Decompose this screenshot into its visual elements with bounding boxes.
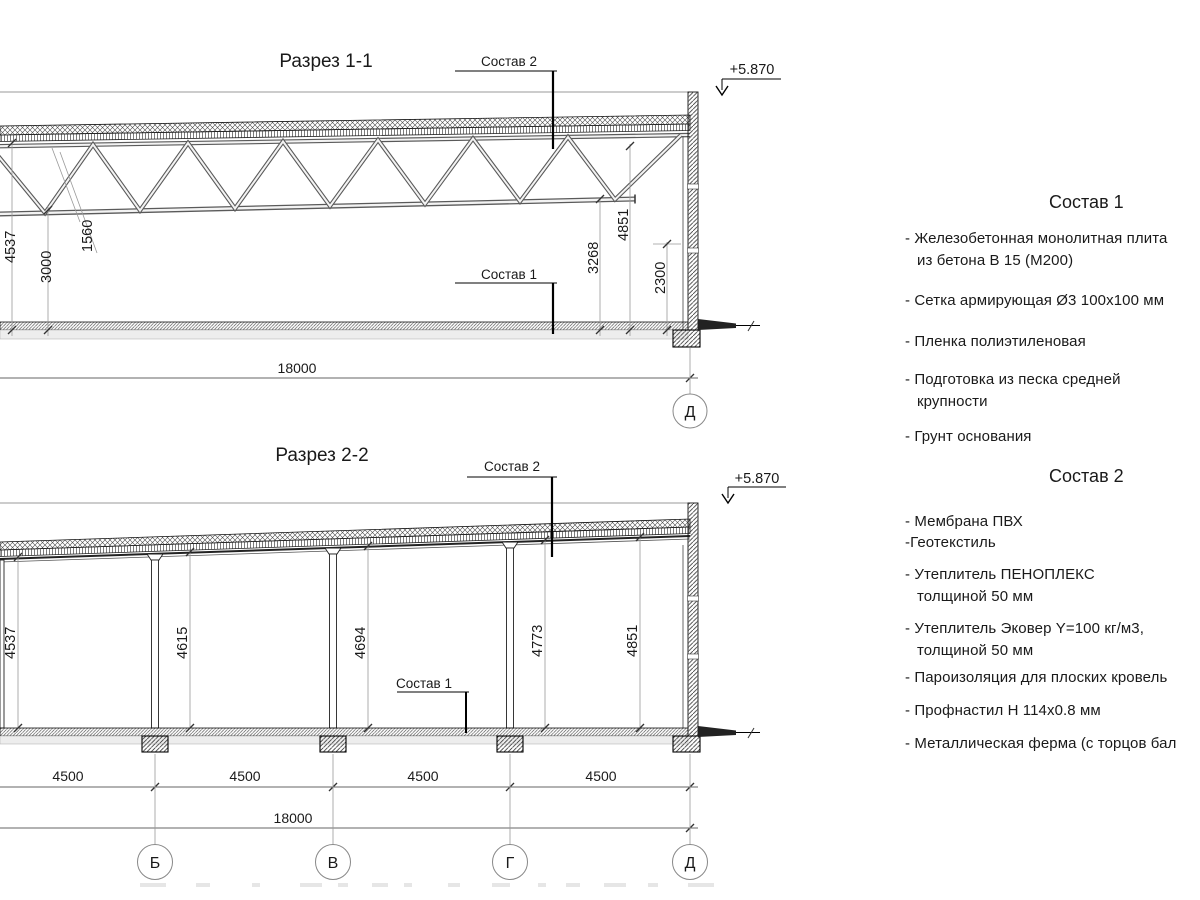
cad-sections-drawing: Разрез 1-1 [0, 0, 800, 900]
dim-4851: 4851 [616, 209, 632, 241]
list-item: - Утеплитель Эковер Y=100 кг/м3, толщино… [905, 618, 1144, 662]
note-line: - Грунт основания [905, 426, 1032, 448]
note-line: крупности [905, 391, 1121, 413]
list-item: -Геотекстиль [905, 532, 996, 554]
list-item: - Пленка полиэтиленовая [905, 331, 1086, 353]
composition-2-title: Состав 2 [1049, 466, 1124, 487]
axis-letter-g: Г [506, 855, 515, 872]
callout-roof-label-2: Состав 2 [484, 459, 540, 474]
dim-18000: 18000 [278, 360, 317, 376]
note-line: - Подготовка из песка средней [905, 369, 1121, 391]
composition-1-title: Состав 1 [1049, 192, 1124, 213]
note-line: - Сетка армирующая Ø3 100х100 мм [905, 290, 1164, 312]
section-2-title: Разрез 2-2 [275, 445, 368, 466]
note-line: - Металлическая ферма (с торцов бал [905, 733, 1176, 755]
section-1-title: Разрез 1-1 [279, 51, 372, 72]
list-item: - Сетка армирующая Ø3 100х100 мм [905, 290, 1164, 312]
column-cap [502, 542, 518, 548]
note-line: - Пароизоляция для плоских кровель [905, 667, 1167, 689]
list-item: - Пароизоляция для плоских кровель [905, 667, 1167, 689]
dim-4773: 4773 [530, 625, 546, 657]
dim-4537-2: 4537 [3, 627, 19, 659]
axis-bubble-d: Д [673, 394, 707, 428]
dim-4615: 4615 [175, 627, 191, 659]
axis-letter: Д [685, 404, 696, 421]
canopy-2 [698, 726, 760, 738]
elevation-mark-2: +5.870 [722, 471, 786, 503]
elevation-value-2: +5.870 [735, 471, 780, 487]
note-line: толщиной 50 мм [905, 586, 1095, 608]
column-cap [147, 554, 163, 560]
section-1: Разрез 1-1 [0, 51, 781, 428]
dim-18000-2: 18000 [274, 810, 313, 826]
dim-3268: 3268 [586, 242, 602, 274]
note-line: - Профнастил Н 114х0.8 мм [905, 700, 1101, 722]
total-width-dimension: 18000 [0, 348, 698, 394]
axis-letter-b: Б [150, 855, 161, 872]
columns [0, 542, 518, 728]
note-line: -Геотекстиль [905, 532, 996, 554]
floor-slab [0, 322, 688, 339]
list-item: - Утеплитель ПЕНОПЛЕКС толщиной 50 мм [905, 564, 1095, 608]
axis-letter-d2: Д [685, 855, 696, 872]
height-leader-lines-2 [18, 536, 640, 728]
list-item: - Железобетонная монолитная плита из бет… [905, 228, 1167, 272]
note-line: - Утеплитель ПЕНОПЛЕКС [905, 564, 1095, 586]
note-line: - Железобетонная монолитная плита [905, 228, 1167, 250]
callout-roof-composition: Состав 2 [455, 54, 557, 149]
elevation-value: +5.870 [730, 62, 775, 78]
column-cap [325, 548, 341, 554]
note-line: - Мембрана ПВХ [905, 511, 1023, 533]
dim-1560: 1560 [80, 220, 96, 252]
note-line: - Утеплитель Эковер Y=100 кг/м3, [905, 618, 1144, 640]
dim-4500-1: 4500 [52, 768, 83, 784]
axis-bubbles-2: Б В Г Д [138, 845, 708, 880]
column-shaft [330, 554, 337, 728]
callout-floor-label: Состав 1 [481, 267, 537, 282]
callout-floor-label-2: Состав 1 [396, 676, 452, 691]
roof-deck-2 [0, 519, 690, 562]
foundation-block [673, 330, 700, 347]
list-item: - Профнастил Н 114х0.8 мм [905, 700, 1101, 722]
roof-truss [0, 135, 690, 214]
bay-dimension-chain: 4500 4500 4500 4500 18000 [0, 754, 698, 844]
note-line: - Пленка полиэтиленовая [905, 331, 1086, 353]
list-item: - Металлическая ферма (с торцов бал [905, 733, 1176, 755]
dim-4694: 4694 [353, 627, 369, 659]
elevation-mark: +5.870 [716, 62, 781, 95]
callout-roof-label: Состав 2 [481, 54, 537, 69]
end-wall-2 [683, 503, 699, 736]
dim-2300: 2300 [653, 262, 669, 294]
list-item: - Грунт основания [905, 426, 1032, 448]
axis-letter-v: В [328, 855, 339, 872]
page-edge-artifacts [140, 883, 714, 887]
column-shaft [507, 548, 514, 728]
section-2: Разрез 2-2 [0, 445, 786, 887]
dim-4500-2: 4500 [229, 768, 260, 784]
canopy [698, 319, 760, 331]
note-line: из бетона В 15 (М200) [905, 250, 1167, 272]
callout-floor-composition-2: Состав 1 [396, 676, 469, 733]
dim-3000: 3000 [39, 251, 55, 283]
dim-4537: 4537 [3, 231, 19, 263]
dim-4500-4: 4500 [585, 768, 616, 784]
column-shaft [152, 560, 159, 728]
note-line: толщиной 50 мм [905, 640, 1144, 662]
list-item: - Подготовка из песка средней крупности [905, 369, 1121, 413]
dim-4500-3: 4500 [407, 768, 438, 784]
dim-4851-2: 4851 [625, 625, 641, 657]
list-item: - Мембрана ПВХ [905, 511, 1023, 533]
